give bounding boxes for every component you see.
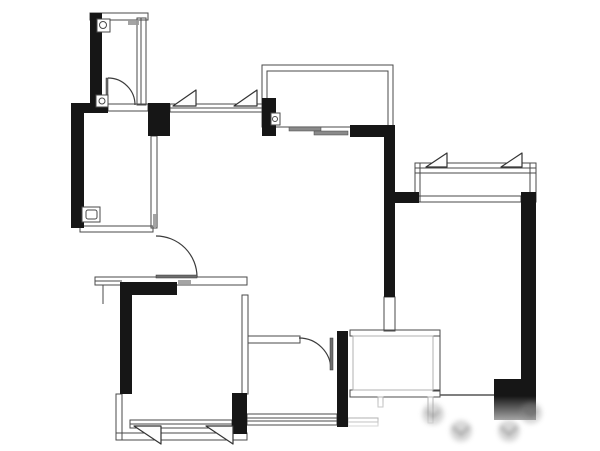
dimension-chip (128, 20, 139, 25)
door-leaf (330, 338, 333, 370)
fade-overlay (348, 396, 600, 451)
floor-drain-symbol (97, 19, 110, 32)
wall-segment (384, 130, 395, 297)
floor-plan-svg (0, 0, 600, 451)
wall-segment (232, 393, 247, 434)
wall-segment (148, 103, 170, 136)
sliding-door-bar (314, 131, 348, 135)
wall-segment (395, 192, 419, 203)
dimension-chip (178, 280, 191, 285)
door-leaf (156, 275, 197, 278)
wall-segment (120, 282, 132, 394)
wall-segment (521, 192, 536, 388)
wall-segment (337, 331, 348, 427)
watermark-blob (422, 403, 444, 425)
dimension-chip (153, 214, 158, 227)
watermark-blob (450, 420, 472, 442)
floor-plan-canvas (0, 0, 600, 451)
watermark-blob (520, 402, 542, 424)
floor-drain-symbol (96, 95, 108, 107)
sliding-door-bar (289, 127, 321, 131)
watermark-blob (498, 420, 520, 442)
